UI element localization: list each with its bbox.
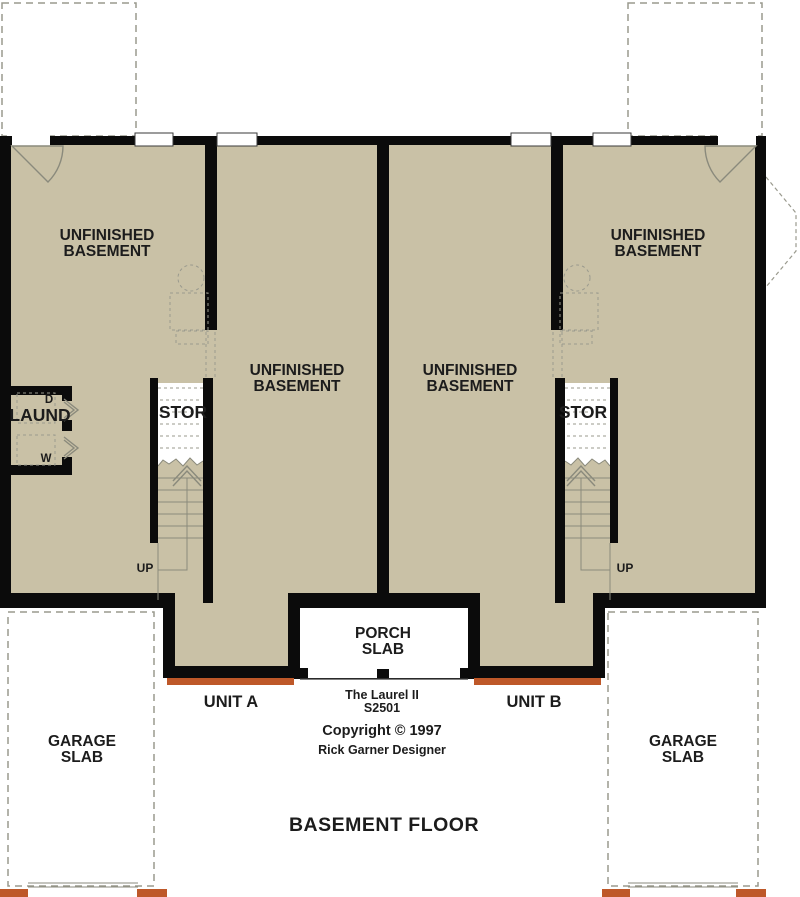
garage-door-sill bbox=[137, 889, 167, 897]
garage-slab-label-right: GARAGE bbox=[649, 733, 717, 750]
party-wall bbox=[377, 140, 389, 608]
porch-slab-label: PORCH bbox=[355, 625, 411, 642]
building-walls bbox=[0, 136, 766, 678]
room-label-unfinished-basement-b-center: UNFINISHED bbox=[423, 362, 518, 379]
plan-name: The Laurel II bbox=[345, 688, 419, 702]
room-label-unfinished-basement-a-upper: UNFINISHED bbox=[60, 227, 155, 244]
designer-name: Rick Garner Designer bbox=[318, 743, 446, 757]
room-label-unfinished-basement-a-upper-line2: BASEMENT bbox=[64, 243, 152, 260]
garage-outline-top-left bbox=[2, 3, 136, 136]
unit-b-entry-sill bbox=[474, 678, 601, 685]
garage-door-sill bbox=[602, 889, 630, 897]
bay-window-dashed-outline bbox=[766, 177, 796, 287]
room-label-unfinished-basement-a-center: UNFINISHED bbox=[250, 362, 345, 379]
floor-plan-canvas: UNFINISHED BASEMENT UNFINISHED BASEMENT … bbox=[0, 0, 800, 897]
garage-door-sill bbox=[0, 889, 28, 897]
room-label-laundry: LAUND bbox=[9, 405, 70, 425]
garage-slab-label-left-line2: SLAB bbox=[61, 749, 103, 766]
room-label-unfinished-basement-b-center-line2: BASEMENT bbox=[427, 378, 515, 395]
dryer-label: D bbox=[45, 394, 53, 406]
sheet-title: BASEMENT FLOOR bbox=[289, 814, 479, 836]
porch-slab-label-line2: SLAB bbox=[362, 641, 404, 658]
room-label-unfinished-basement-b-upper-line2: BASEMENT bbox=[615, 243, 703, 260]
unit-a-label: UNIT A bbox=[204, 693, 258, 711]
garage-slab-label-right-line2: SLAB bbox=[662, 749, 704, 766]
garage-door-sill bbox=[736, 889, 766, 897]
copyright-line: Copyright © 1997 bbox=[322, 723, 441, 739]
unit-a-entry-sill bbox=[167, 678, 294, 685]
basement-floor-plan-drawing: UNFINISHED BASEMENT UNFINISHED BASEMENT … bbox=[0, 0, 800, 897]
garage-outline-top-right bbox=[628, 3, 762, 136]
room-label-storage-b: STOR bbox=[559, 402, 608, 422]
room-label-storage-a: STOR bbox=[159, 402, 208, 422]
room-label-unfinished-basement-a-center-line2: BASEMENT bbox=[254, 378, 342, 395]
stair-up-label-a: UP bbox=[137, 561, 154, 575]
washer-label: W bbox=[41, 453, 52, 465]
room-label-unfinished-basement-b-upper: UNFINISHED bbox=[611, 227, 706, 244]
unit-a-entry-extension bbox=[175, 593, 288, 666]
unit-b-label: UNIT B bbox=[507, 693, 562, 711]
garage-slab-label-left: GARAGE bbox=[48, 733, 116, 750]
plan-number: S2501 bbox=[364, 701, 400, 715]
porch-center-post bbox=[377, 669, 389, 679]
unit-b-entry-extension bbox=[480, 593, 593, 666]
stair-up-label-b: UP bbox=[617, 561, 634, 575]
